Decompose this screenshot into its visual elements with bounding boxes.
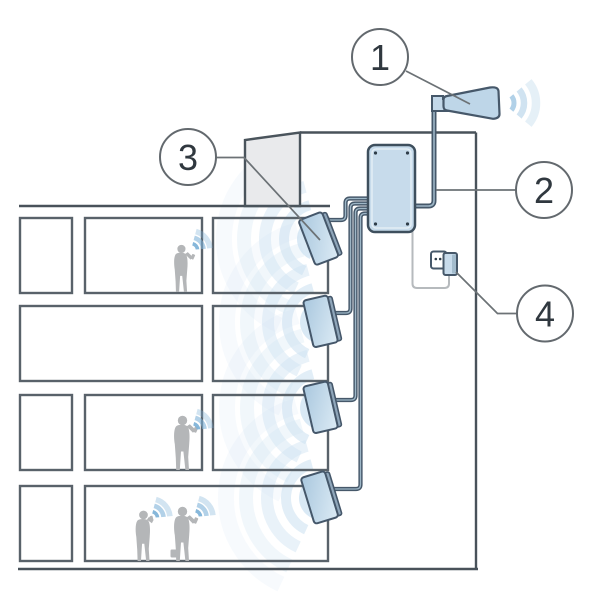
person-floor1 (174, 245, 195, 292)
phone-wave-floor4-left-icon (153, 500, 170, 518)
briefcase-icon (171, 550, 180, 558)
callouts: 1 2 3 4 (160, 29, 573, 342)
callout-1-number: 1 (370, 37, 390, 78)
callout-4-number: 4 (535, 294, 555, 335)
booster-system-diagram: 1 2 3 4 (0, 0, 600, 600)
rooftop-structure (245, 133, 300, 207)
person-floor4-left (136, 511, 154, 561)
indoor-panel-antennas (298, 210, 342, 524)
outdoor-donor-antenna-icon (432, 82, 536, 124)
screw-icon (374, 222, 377, 225)
screw-icon (406, 222, 409, 225)
room-f3-left (20, 395, 72, 470)
screw-icon (374, 151, 377, 154)
antenna-feed-cable (415, 110, 434, 206)
room-f1-left (20, 218, 72, 293)
room-f2-left (20, 306, 202, 381)
callout-4-leader (456, 272, 517, 314)
phone-wave-floor4-right-icon (196, 499, 213, 517)
diagram-canvas: 1 2 3 4 (0, 0, 600, 600)
phone-wave-floor3-icon (194, 412, 211, 430)
room-f4-left (20, 486, 72, 561)
screw-icon (406, 151, 409, 154)
indoor-signal-waves (224, 147, 317, 584)
outdoor-signal-wave-icon (511, 82, 536, 124)
plug-side-shade (452, 255, 456, 274)
indoor-panel-antenna-4-icon (301, 470, 343, 524)
person-floor4-right (171, 507, 199, 561)
antenna-body (444, 87, 500, 118)
callout-3-number: 3 (178, 137, 198, 178)
signal-booster-unit-icon (368, 145, 415, 232)
callout-2-number: 2 (534, 170, 554, 211)
power-outlet-plug-icon (431, 252, 457, 276)
phone-wave-floor1-icon (193, 232, 210, 250)
